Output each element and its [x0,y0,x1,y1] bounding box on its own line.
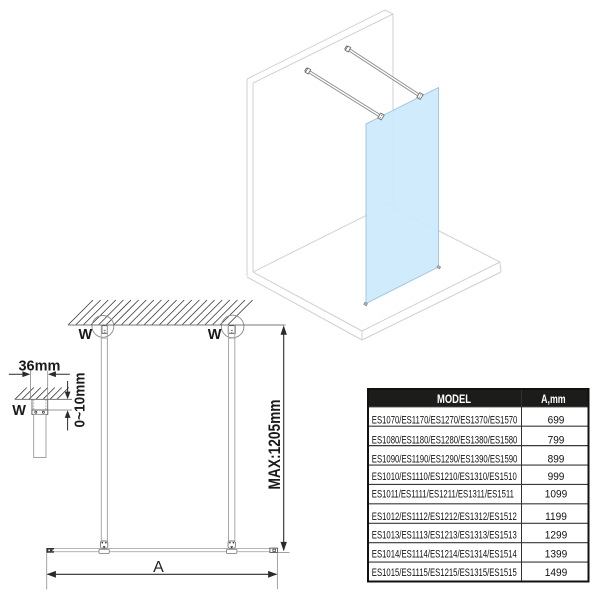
svg-text:ES1090/ES1190/ES1290/ES1390/ES: ES1090/ES1190/ES1290/ES1390/ES1590 [372,453,518,466]
svg-text:0~10mm: 0~10mm [72,373,89,428]
svg-text:ES1011/ES1111/ES1211/ES1311/ES: ES1011/ES1111/ES1211/ES1311/ES1511 [372,488,514,501]
svg-text:W: W [208,327,222,343]
svg-text:999: 999 [548,471,565,483]
svg-text:1099: 1099 [545,488,568,500]
svg-text:ES1070/ES1170/ES1270/ES1370/ES: ES1070/ES1170/ES1270/ES1370/ES1570 [372,414,518,427]
svg-text:ES1012/ES1112/ES1212/ES1312/ES: ES1012/ES1112/ES1212/ES1312/ES1512 [372,511,517,524]
svg-text:MAX:1205mm: MAX:1205mm [266,400,284,490]
svg-text:A: A [153,559,164,576]
svg-text:799: 799 [548,434,565,446]
svg-text:1399: 1399 [545,548,568,560]
svg-text:ES1015/ES1115/ES1215/ES1315/ES: ES1015/ES1115/ES1215/ES1315/ES1515 [372,566,517,579]
svg-text:ES1014/ES1114/ES1214/ES1314/ES: ES1014/ES1114/ES1214/ES1314/ES1514 [372,548,517,561]
svg-text:1199: 1199 [545,511,567,523]
svg-text:1499: 1499 [545,566,568,578]
svg-text:1299: 1299 [545,529,568,541]
svg-text:ES1013/ES1113/ES1213/ES1313/ES: ES1013/ES1113/ES1213/ES1313/ES1513 [372,529,517,542]
svg-text:A,mm: A,mm [541,394,566,406]
svg-text:W: W [12,403,26,419]
svg-text:699: 699 [548,414,565,426]
svg-text:899: 899 [548,453,565,465]
svg-text:36mm: 36mm [18,358,60,374]
svg-text:MODEL: MODEL [437,394,471,406]
svg-text:ES1080/ES1180/ES1280/ES1380/ES: ES1080/ES1180/ES1280/ES1380/ES1580 [372,434,518,447]
svg-text:W: W [79,327,93,343]
svg-text:ES1010/ES1110/ES1210/ES1310/ES: ES1010/ES1110/ES1210/ES1310/ES1510 [372,471,517,484]
